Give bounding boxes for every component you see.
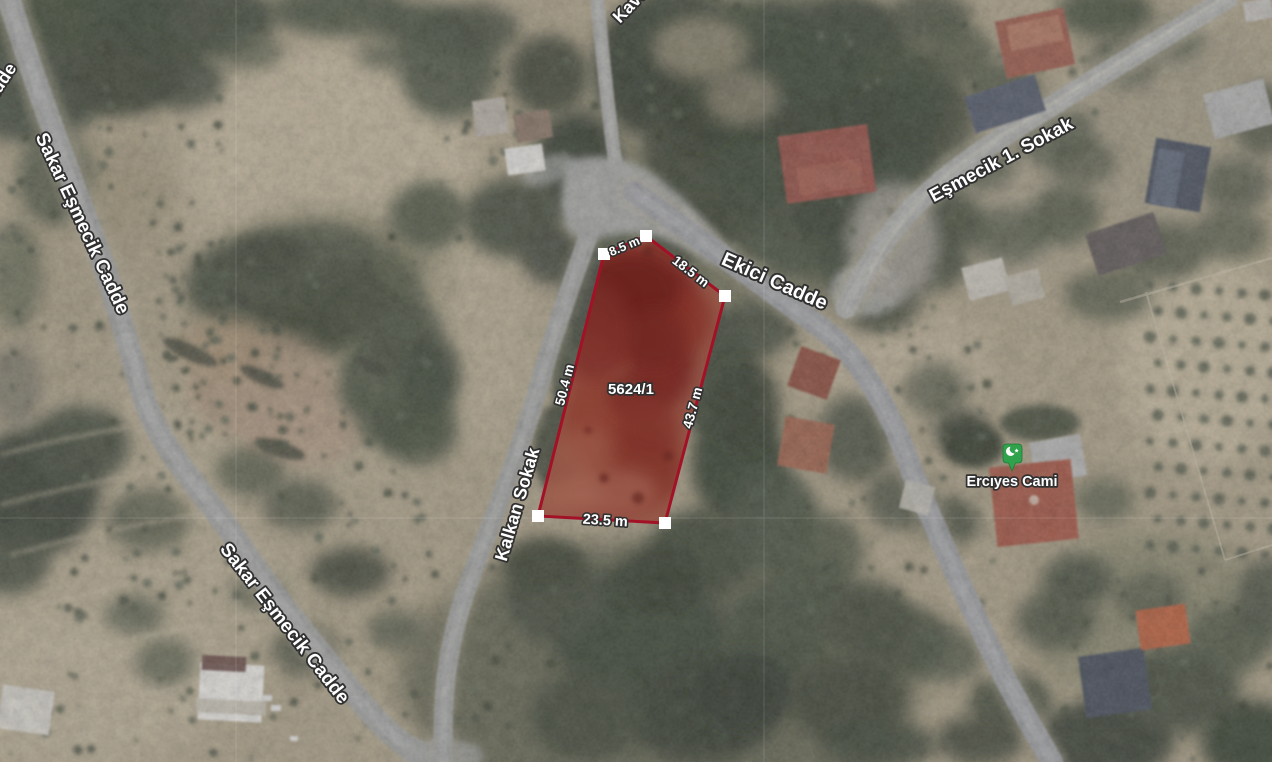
svg-text:Ercıyes Cami: Ercıyes Cami bbox=[966, 474, 1057, 490]
svg-text:23.5 m: 23.5 m bbox=[582, 512, 628, 531]
svg-text:5624/1: 5624/1 bbox=[608, 381, 654, 398]
